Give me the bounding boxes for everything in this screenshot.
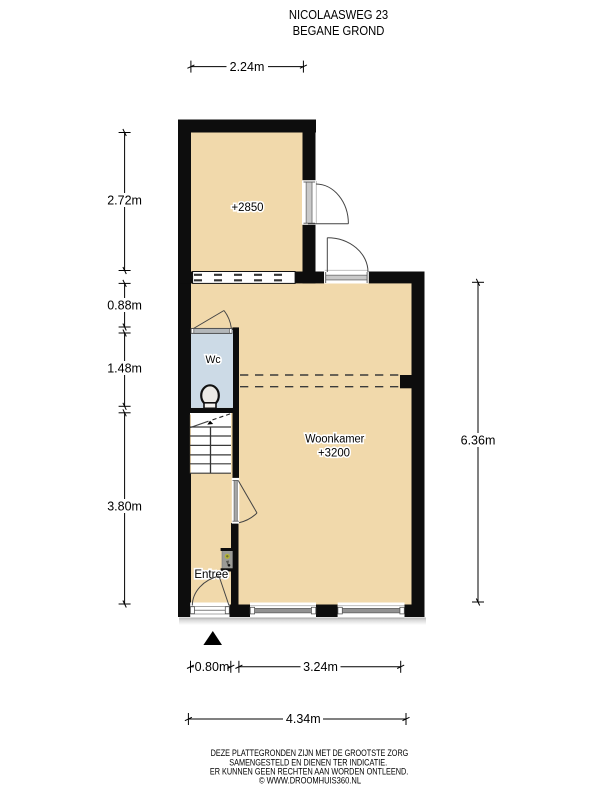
- svg-text:2.24m: 2.24m: [230, 60, 265, 74]
- svg-text:+3200: +3200: [318, 446, 350, 459]
- svg-text:0.88m: 0.88m: [107, 299, 142, 313]
- svg-text:2.72m: 2.72m: [107, 194, 142, 208]
- svg-text:3.80m: 3.80m: [107, 500, 142, 514]
- svg-text:6.36m: 6.36m: [461, 434, 496, 448]
- svg-text:+2850: +2850: [232, 201, 264, 214]
- svg-text:NICOLAASWEG 23: NICOLAASWEG 23: [289, 7, 389, 22]
- svg-text:3.24m: 3.24m: [303, 660, 338, 674]
- svg-text:Woonkamer: Woonkamer: [305, 433, 364, 445]
- svg-text:Wc: Wc: [205, 354, 221, 366]
- svg-text:0.80m: 0.80m: [195, 660, 230, 674]
- svg-text:4.34m: 4.34m: [286, 712, 321, 726]
- svg-text:BEGANE GROND: BEGANE GROND: [293, 23, 385, 38]
- svg-text:© WWW.DROOMHUIS360.NL: © WWW.DROOMHUIS360.NL: [259, 775, 361, 786]
- svg-text:1.48m: 1.48m: [107, 362, 142, 376]
